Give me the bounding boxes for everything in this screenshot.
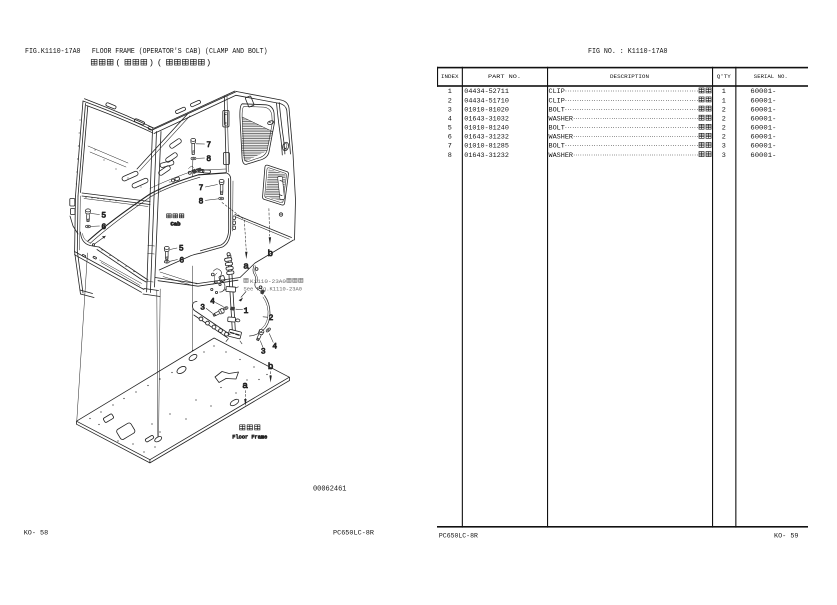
svg-text:3: 3 xyxy=(722,152,726,160)
svg-text:2: 2 xyxy=(269,314,274,323)
svg-text:2: 2 xyxy=(448,97,452,105)
svg-text:PC650LC-8R: PC650LC-8R xyxy=(439,533,478,541)
svg-text:00062461: 00062461 xyxy=(313,486,347,494)
svg-text:PC650LC-8R: PC650LC-8R xyxy=(333,530,374,538)
svg-text:60001-: 60001- xyxy=(750,106,776,114)
svg-text:WASHER: WASHER xyxy=(549,134,573,142)
svg-text:60001-: 60001- xyxy=(750,143,776,151)
svg-text:CLIP: CLIP xyxy=(549,88,565,96)
svg-text:): ) xyxy=(149,58,154,68)
svg-text:2: 2 xyxy=(722,125,726,133)
svg-text:04434-52711: 04434-52711 xyxy=(464,88,509,96)
svg-text:BOLT: BOLT xyxy=(549,143,565,151)
svg-text:FIG.K1110-17A0: FIG.K1110-17A0 xyxy=(25,48,81,56)
svg-text:7: 7 xyxy=(206,141,211,150)
svg-text:INDEX: INDEX xyxy=(441,73,459,80)
svg-text:6: 6 xyxy=(448,134,452,142)
svg-text:3: 3 xyxy=(200,304,205,313)
svg-text:Floor Frame: Floor Frame xyxy=(232,433,267,440)
svg-text:2: 2 xyxy=(722,106,726,114)
svg-text:(: ( xyxy=(157,58,162,68)
svg-text:3: 3 xyxy=(448,106,452,114)
svg-text:60001-: 60001- xyxy=(750,97,776,105)
svg-text:5: 5 xyxy=(448,125,452,133)
svg-text:7: 7 xyxy=(199,184,204,193)
svg-text:01010-81020: 01010-81020 xyxy=(464,106,509,114)
svg-text:4: 4 xyxy=(210,298,215,307)
svg-text:······························: ········································… xyxy=(573,152,699,160)
svg-text:······························: ········································… xyxy=(573,134,699,142)
svg-text:1: 1 xyxy=(722,97,726,105)
svg-text:b: b xyxy=(268,361,273,371)
svg-text:······························: ········································… xyxy=(565,97,699,105)
svg-text:a: a xyxy=(242,380,248,390)
svg-text:KO- 59: KO- 59 xyxy=(774,533,798,541)
svg-text:FIG NO. : K1110-17A0: FIG NO. : K1110-17A0 xyxy=(588,48,668,56)
svg-text:1: 1 xyxy=(448,88,452,96)
svg-text:60001-: 60001- xyxy=(750,125,776,133)
svg-text:KO- 58: KO- 58 xyxy=(24,530,48,538)
svg-text:8: 8 xyxy=(206,155,211,164)
svg-text:60001-: 60001- xyxy=(750,152,776,160)
svg-text:WASHER: WASHER xyxy=(549,116,573,124)
svg-text:4: 4 xyxy=(448,116,452,124)
svg-text:2: 2 xyxy=(722,134,726,142)
svg-text:8: 8 xyxy=(448,152,452,160)
svg-text:SERIAL NO.: SERIAL NO. xyxy=(754,73,788,80)
svg-text:See Fig.K1110-23A0: See Fig.K1110-23A0 xyxy=(244,285,303,292)
svg-text:FLOOR FRAME (OPERATOR'S CAB) (: FLOOR FRAME (OPERATOR'S CAB) (CLAMP AND … xyxy=(92,48,268,56)
svg-text:······························: ········································… xyxy=(565,125,699,133)
svg-text:······························: ········································… xyxy=(565,88,699,96)
svg-text:BOLT: BOLT xyxy=(549,125,565,133)
svg-text:BOLT: BOLT xyxy=(549,106,565,114)
svg-text:b: b xyxy=(268,248,273,258)
svg-text:01010-81285: 01010-81285 xyxy=(464,143,509,151)
svg-text:DESCRIPTION: DESCRIPTION xyxy=(610,73,649,80)
svg-text:······························: ········································… xyxy=(565,143,699,151)
svg-text:4: 4 xyxy=(272,343,277,352)
svg-text:3: 3 xyxy=(722,143,726,151)
svg-text:······························: ········································… xyxy=(565,106,699,114)
svg-text:01643-31232: 01643-31232 xyxy=(464,152,509,160)
svg-text:04434-51710: 04434-51710 xyxy=(464,97,509,105)
svg-text:a: a xyxy=(243,261,249,271)
svg-text:2: 2 xyxy=(722,116,726,124)
svg-text:CLIP: CLIP xyxy=(549,97,565,105)
svg-text:01643-31032: 01643-31032 xyxy=(464,116,509,124)
svg-text:60001-: 60001- xyxy=(750,134,776,142)
svg-text:): ) xyxy=(206,58,211,68)
svg-text:······························: ········································… xyxy=(573,116,699,124)
svg-text:01643-31232: 01643-31232 xyxy=(464,134,509,142)
svg-text:60001-: 60001- xyxy=(750,116,776,124)
svg-text:1: 1 xyxy=(722,88,726,96)
svg-text:5: 5 xyxy=(179,244,184,253)
svg-text:01010-81240: 01010-81240 xyxy=(464,125,509,133)
svg-text:WASHER: WASHER xyxy=(549,152,573,160)
svg-text:Q'TY: Q'TY xyxy=(717,73,731,80)
svg-text:PART NO.: PART NO. xyxy=(488,73,521,80)
svg-text:3: 3 xyxy=(261,347,266,356)
svg-text:1: 1 xyxy=(244,307,249,316)
svg-text:Cab: Cab xyxy=(170,221,181,228)
svg-text:6: 6 xyxy=(179,256,184,265)
svg-text:6: 6 xyxy=(101,223,106,232)
svg-text:5: 5 xyxy=(101,211,106,220)
svg-text:60001-: 60001- xyxy=(750,88,776,96)
svg-text:(: ( xyxy=(116,58,121,68)
svg-text:8: 8 xyxy=(199,198,204,207)
svg-text:7: 7 xyxy=(448,143,452,151)
